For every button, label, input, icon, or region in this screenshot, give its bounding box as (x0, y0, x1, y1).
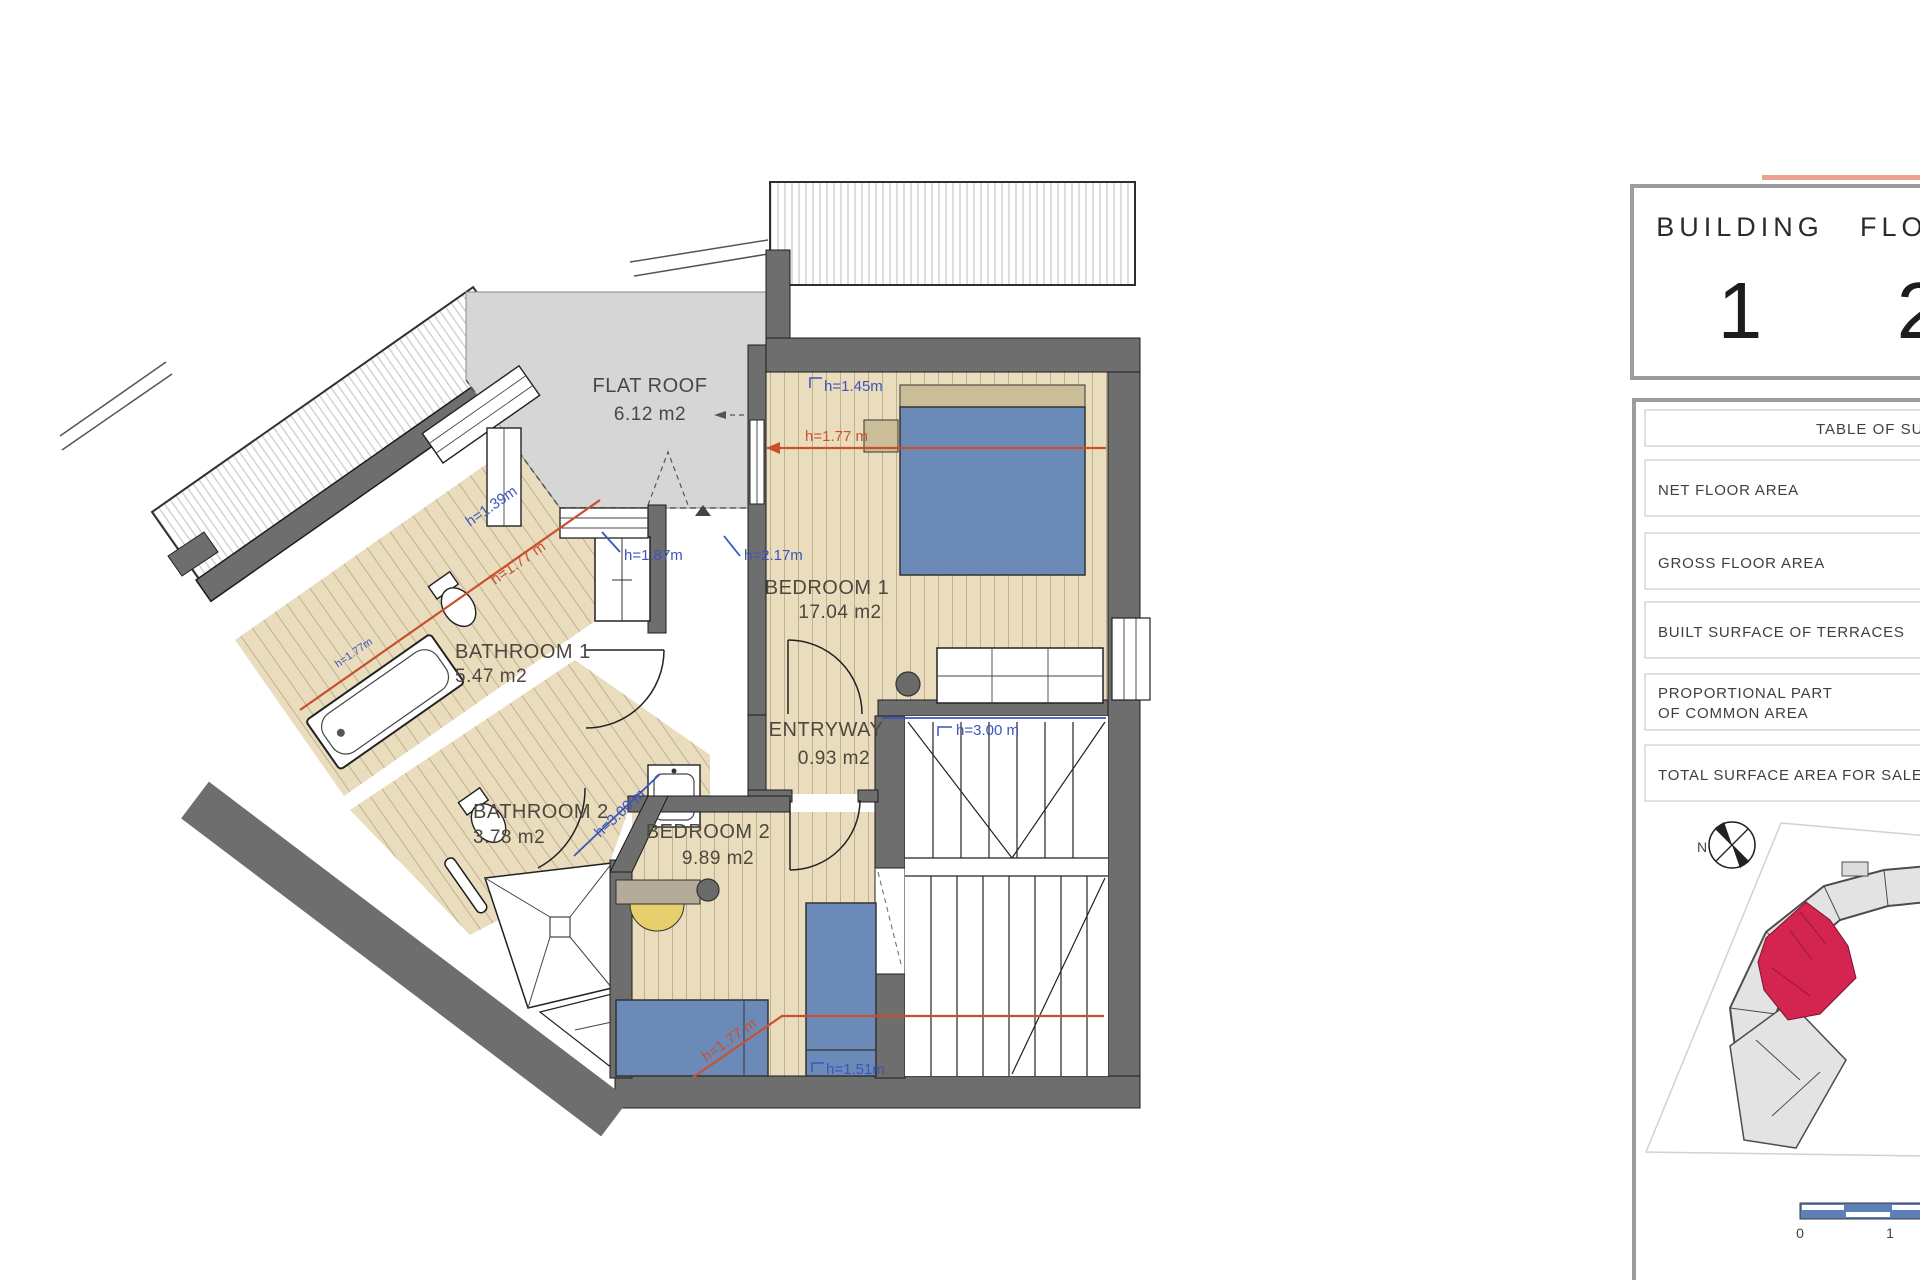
accent-line (1762, 175, 1920, 180)
bedroom1-area: 17.04 m2 (798, 602, 881, 623)
height-label: h=1.77 m (805, 428, 868, 445)
scale-tick-0: 0 (1796, 1225, 1804, 1241)
bathroom1-area: 5.47 m2 (455, 666, 527, 687)
window (750, 420, 764, 504)
wall (858, 790, 878, 802)
height-label: h=1.87m (624, 547, 683, 564)
table-row-label: TOTAL SURFACE AREA FOR SALE (1658, 767, 1920, 784)
building-info-box: BUILDING 1 FLOOR 2 (1632, 186, 1920, 378)
scale-tick-1: 1 (1886, 1225, 1894, 1241)
table-row-label: BUILT SURFACE OF TERRACES (1658, 624, 1905, 641)
wall-entry-left (748, 715, 766, 800)
height-label: h=2.17m (744, 547, 803, 564)
height-label: h=1.51m (826, 1061, 885, 1078)
table-row-label: GROSS FLOOR AREA (1658, 555, 1825, 572)
surface-table-panel: TABLE OF SURFACES NET FLOOR AREA GROSS F… (1634, 400, 1920, 1280)
floor-label: FLOOR (1860, 212, 1920, 242)
roof-edge-line (634, 254, 768, 276)
dresser (937, 648, 1103, 703)
bathroom2-area: 3.78 m2 (473, 827, 545, 848)
window-door (875, 868, 905, 974)
floor-number: 2 (1897, 266, 1920, 355)
stool (896, 672, 920, 696)
bathroom1-label: BATHROOM 1 (455, 641, 591, 663)
wall-bottom (615, 1076, 1140, 1108)
window (1112, 618, 1150, 700)
bathroom2-label: BATHROOM 2 (473, 801, 609, 823)
wall-top-bedroom1 (766, 338, 1140, 372)
table-row-label: OF COMMON AREA (1658, 705, 1808, 722)
wall-left-bedroom1 (748, 345, 766, 715)
bedroom2-area: 9.89 m2 (682, 848, 754, 869)
building-label: BUILDING (1656, 212, 1824, 242)
table-header: TABLE OF SURFACES (1816, 421, 1920, 438)
flat-roof-area: 6.12 m2 (614, 404, 686, 425)
building-number: 1 (1718, 266, 1763, 355)
entryway-label: ENTRYWAY (769, 719, 884, 741)
height-label: h=3.00 m (956, 722, 1019, 739)
stool (697, 879, 719, 901)
floor-plan-sheet: h=1.77 m h=1.77 m h=1.77 m h=3.00 m h=1.… (0, 0, 1920, 1280)
wall-right (1108, 372, 1140, 1108)
terrace-edge-line (62, 374, 172, 450)
compass-north-label: N (1697, 839, 1707, 855)
staircase (905, 716, 1108, 1076)
wall (766, 250, 790, 345)
flat-roof-label: FLAT ROOF (593, 375, 708, 397)
bedroom1-label: BEDROOM 1 (765, 577, 890, 599)
roof-edge-line (630, 240, 768, 262)
bedroom2-label: BEDROOM 2 (646, 821, 771, 843)
height-label: h=1.45m (824, 378, 883, 395)
table-row-label: PROPORTIONAL PART (1658, 685, 1833, 702)
entryway-area: 0.93 m2 (798, 748, 870, 769)
terrace-edge-line (60, 362, 166, 436)
roof-band-top (770, 182, 1135, 285)
bedroom2-wardrobe-bed (806, 903, 876, 1076)
table-row-label: NET FLOOR AREA (1658, 482, 1799, 499)
floor-plan: h=1.77 m h=1.77 m h=1.77 m h=3.00 m h=1.… (60, 182, 1150, 1118)
